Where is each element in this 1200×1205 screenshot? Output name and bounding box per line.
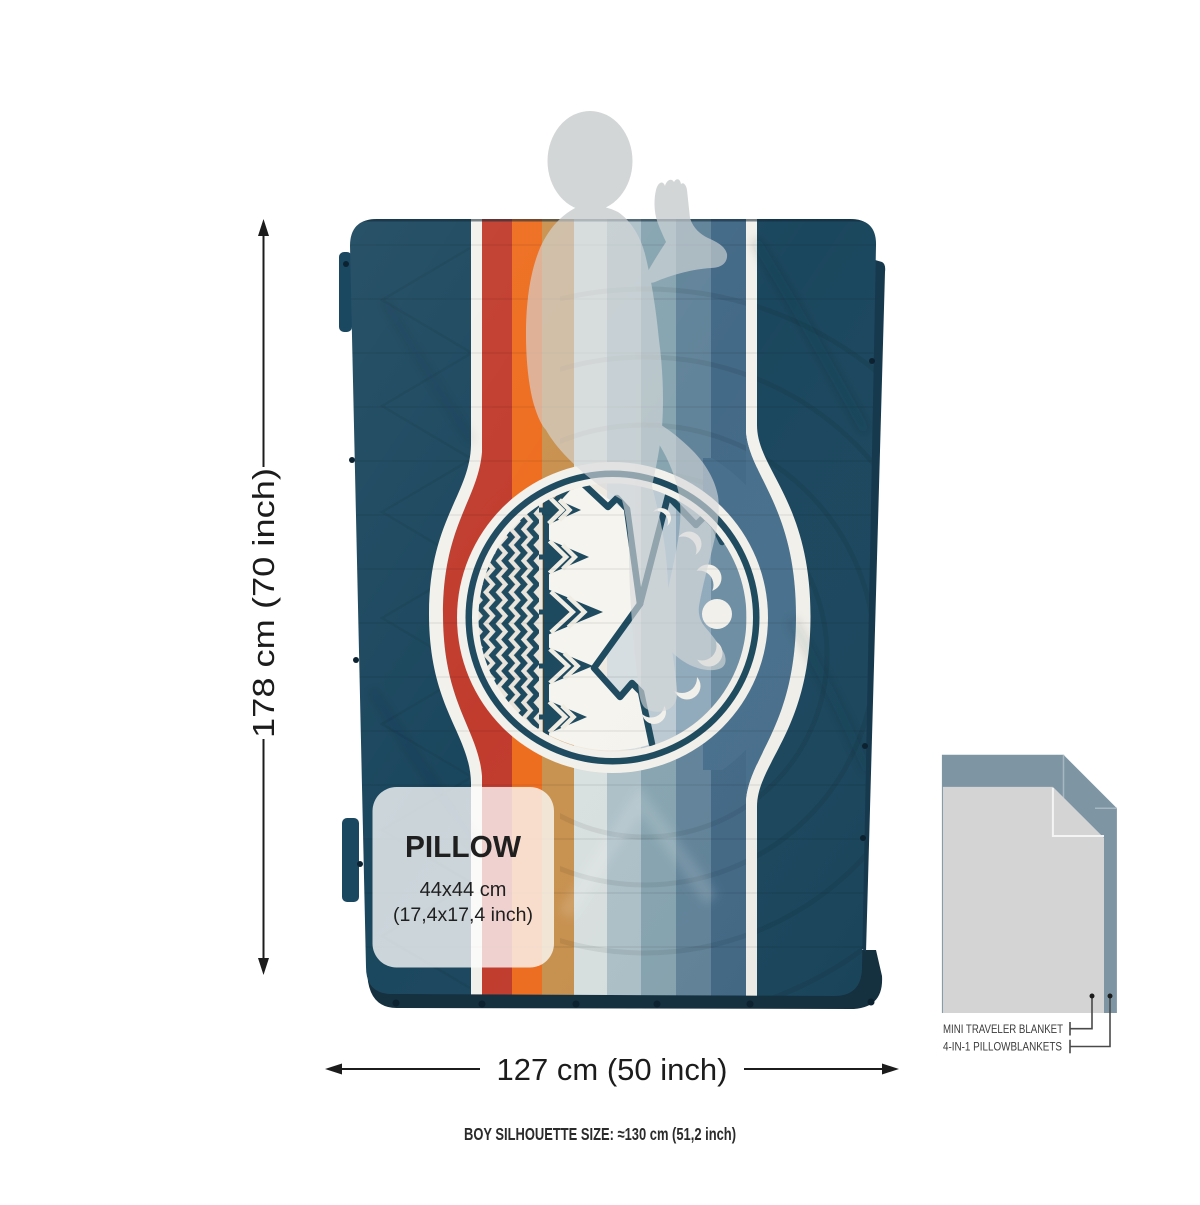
- svg-text:MINI TRAVELER BLANKET: MINI TRAVELER BLANKET: [943, 1022, 1064, 1036]
- svg-text:(17,4x17,4 inch): (17,4x17,4 inch): [393, 904, 533, 926]
- svg-text:4-IN-1 PILLOWBLANKETS: 4-IN-1 PILLOWBLANKETS: [943, 1040, 1062, 1054]
- svg-text:44x44 cm: 44x44 cm: [420, 879, 507, 901]
- svg-text:BOY SILHOUETTE SIZE: ≈130 cm (: BOY SILHOUETTE SIZE: ≈130 cm (51,2 inch): [464, 1124, 736, 1144]
- svg-text:127 cm (50 inch): 127 cm (50 inch): [497, 1052, 728, 1087]
- svg-text:178 cm (70 inch): 178 cm (70 inch): [246, 468, 281, 738]
- svg-text:PILLOW: PILLOW: [405, 830, 521, 864]
